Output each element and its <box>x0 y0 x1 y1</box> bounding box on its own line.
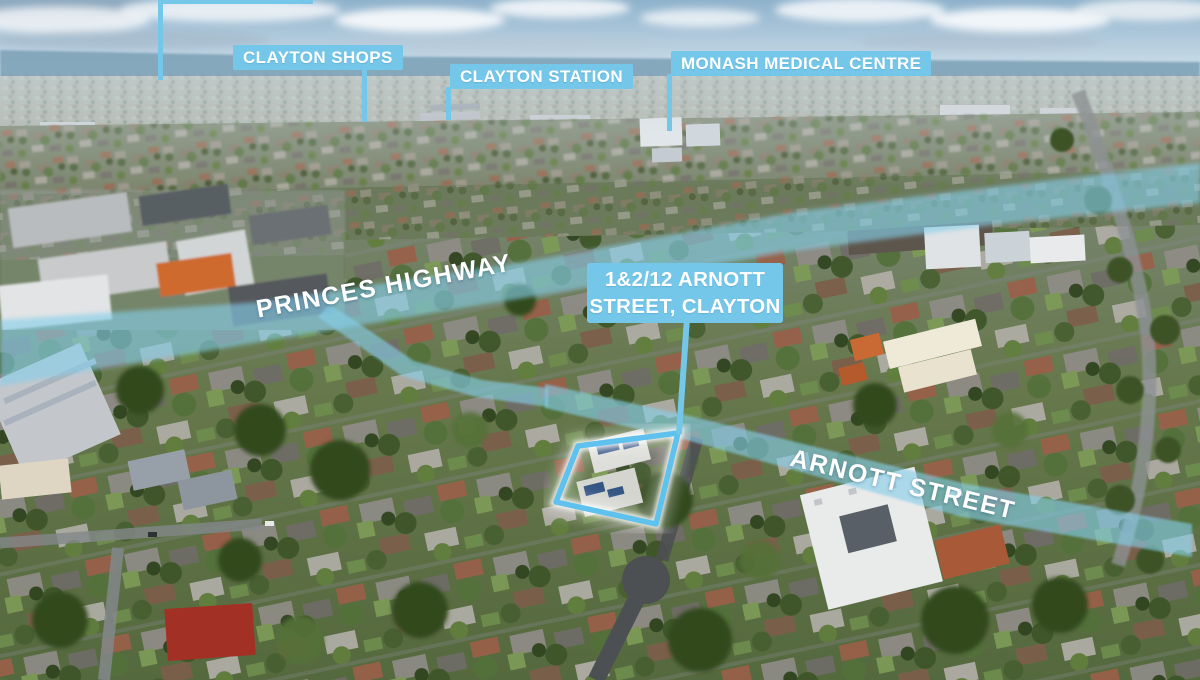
clayton-shops-label: CLAYTON SHOPS <box>233 45 403 70</box>
clayton-station-label: CLAYTON STATION <box>450 64 633 89</box>
clipped-label-leader-line <box>158 0 163 80</box>
property-address-label: 1&2/12 ARNOTT STREET, CLAYTON <box>587 263 783 323</box>
aerial-map: CLAYTON SHOPS CLAYTON STATION MONASH MED… <box>0 0 1200 680</box>
property-address-line-2: STREET, CLAYTON <box>587 293 783 320</box>
aerial-photograph <box>0 0 1200 680</box>
clayton-station-leader-line <box>446 87 451 120</box>
monash-medical-leader-line <box>667 74 672 131</box>
monash-medical-label: MONASH MEDICAL CENTRE <box>671 51 931 76</box>
clipped-label-bar <box>162 0 313 4</box>
property-address-line-1: 1&2/12 ARNOTT <box>587 266 783 293</box>
property-highlight-outline <box>556 433 678 524</box>
clayton-shops-leader-line <box>362 68 367 122</box>
